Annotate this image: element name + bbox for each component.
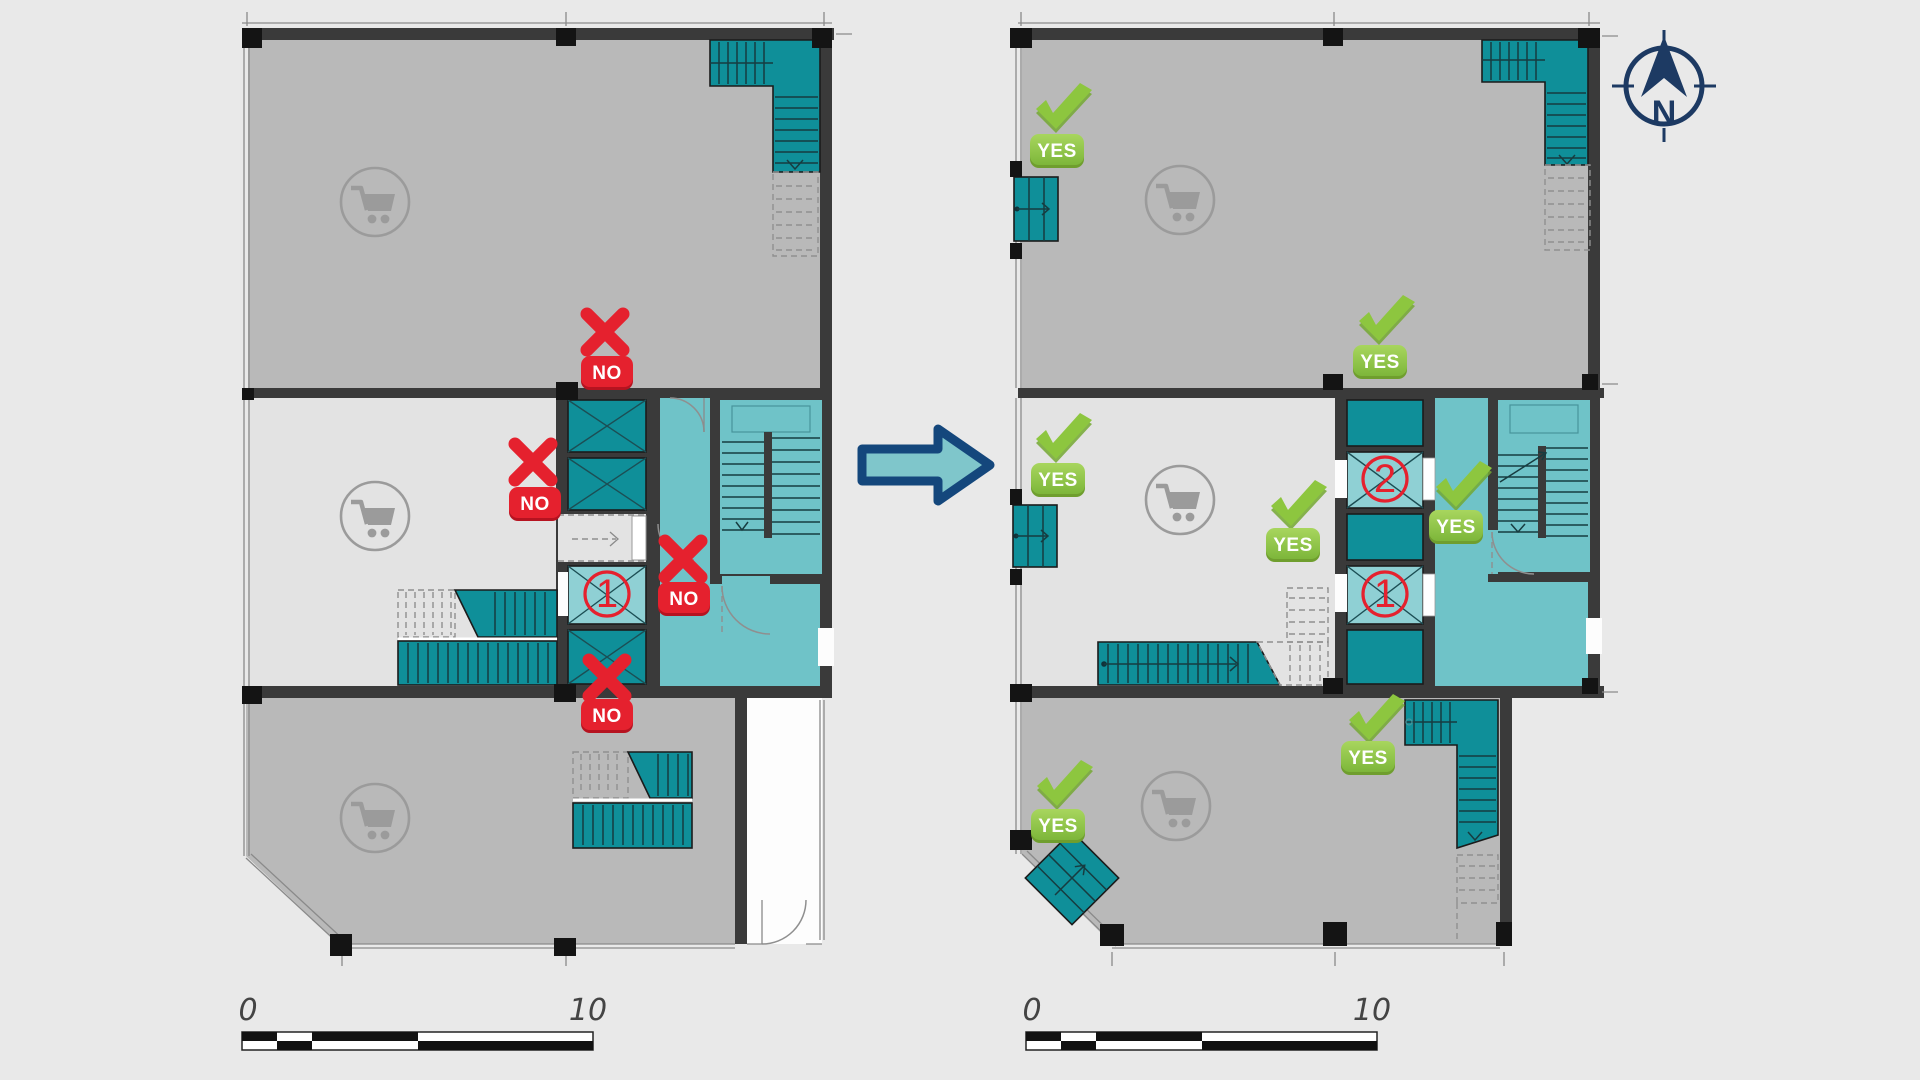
u-staircase-after	[1488, 390, 1600, 582]
elevator-core-after: 2 1	[1335, 392, 1435, 692]
yes-label: YES	[1037, 141, 1077, 162]
yes-label: YES	[1273, 535, 1313, 556]
unit-number: 1	[596, 572, 618, 616]
floor-plan-after: 2 1	[1010, 12, 1618, 966]
unit-number: 2	[1374, 457, 1396, 501]
no-label: NO	[669, 589, 699, 610]
yes-label: YES	[1038, 470, 1078, 491]
elevator-shaft	[568, 458, 646, 510]
scale-bar-left: 0 10	[238, 993, 607, 1050]
service-shaft	[1347, 630, 1423, 684]
no-label: NO	[592, 363, 622, 384]
yes-label: YES	[1348, 748, 1388, 769]
no-label: NO	[520, 494, 550, 515]
transform-arrow	[862, 429, 990, 501]
elevator-shaft	[568, 400, 646, 452]
scale-min: 0	[238, 993, 257, 1028]
unit-elevator-1: 1	[1335, 566, 1435, 624]
entry-steps-middle-room	[1013, 505, 1057, 567]
no-label: NO	[592, 706, 622, 727]
service-shaft	[1347, 514, 1423, 560]
north-label: N	[1652, 94, 1677, 132]
yes-label: YES	[1436, 517, 1476, 538]
floor-plan-before: 1	[242, 12, 852, 966]
scale-min: 0	[1022, 993, 1041, 1028]
unit-number: 1	[1374, 572, 1396, 616]
service-shaft	[1347, 400, 1423, 446]
scale-max: 10	[569, 993, 607, 1028]
unit-elevator-2: 2	[1335, 452, 1435, 508]
entry-steps-top-room	[1014, 177, 1058, 241]
diagram-canvas: 1	[0, 0, 1920, 1080]
scale-max: 10	[1353, 993, 1391, 1028]
floor-plan-comparison-page: 1	[0, 0, 1920, 1080]
unit-elevator-1: 1	[558, 566, 646, 624]
scale-bar-right: 0 10	[1022, 993, 1391, 1050]
corridor	[558, 514, 646, 562]
yes-label: YES	[1038, 816, 1078, 837]
elevator-core-before: 1	[556, 392, 660, 692]
north-compass-icon: N	[1612, 30, 1716, 142]
yes-label: YES	[1360, 352, 1400, 373]
